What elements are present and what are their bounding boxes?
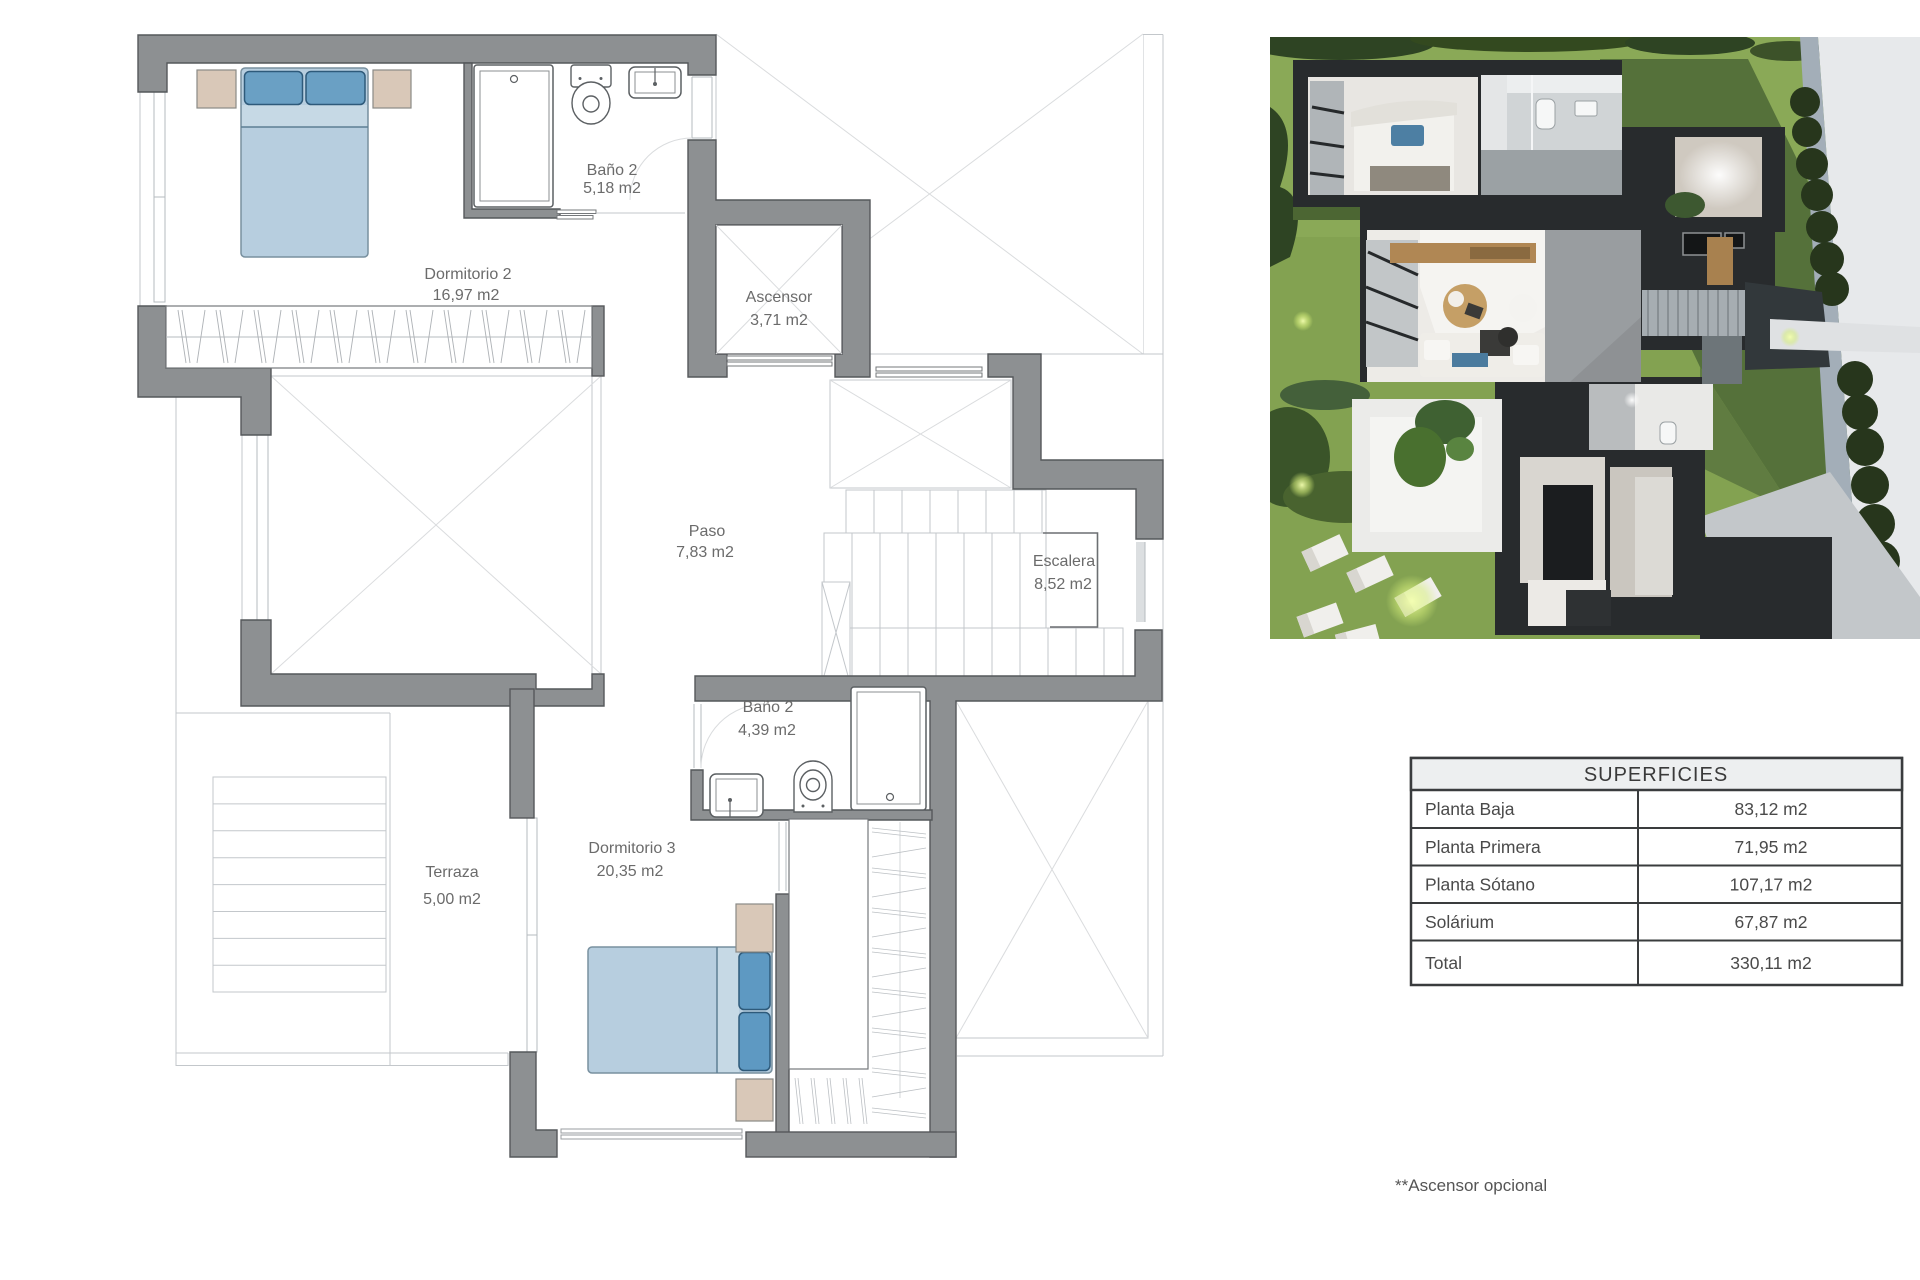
svg-text:330,11 m2: 330,11 m2 bbox=[1730, 953, 1811, 973]
svg-text:5,00 m2: 5,00 m2 bbox=[423, 891, 481, 908]
svg-text:4,39 m2: 4,39 m2 bbox=[738, 722, 796, 739]
svg-text:5,18 m2: 5,18 m2 bbox=[583, 180, 641, 197]
svg-text:20,35 m2: 20,35 m2 bbox=[597, 863, 664, 880]
svg-text:Total: Total bbox=[1425, 953, 1462, 973]
svg-text:83,12 m2: 83,12 m2 bbox=[1735, 799, 1808, 819]
svg-text:**Ascensor opcional: **Ascensor opcional bbox=[1395, 1176, 1547, 1195]
svg-text:16,97 m2: 16,97 m2 bbox=[433, 287, 500, 304]
svg-text:Ascensor: Ascensor bbox=[746, 289, 813, 306]
svg-text:Dormitorio 2: Dormitorio 2 bbox=[424, 266, 511, 283]
svg-text:Escalera: Escalera bbox=[1033, 553, 1095, 570]
svg-text:71,95 m2: 71,95 m2 bbox=[1735, 837, 1808, 857]
svg-text:Planta Primera: Planta Primera bbox=[1425, 837, 1541, 857]
svg-text:Baño 2: Baño 2 bbox=[743, 699, 794, 716]
svg-text:Solárium: Solárium bbox=[1425, 912, 1494, 932]
svg-text:7,83 m2: 7,83 m2 bbox=[676, 544, 734, 561]
svg-text:8,52 m2: 8,52 m2 bbox=[1034, 576, 1092, 593]
svg-text:SUPERFICIES: SUPERFICIES bbox=[1584, 764, 1728, 786]
svg-text:Terraza: Terraza bbox=[425, 864, 478, 881]
svg-text:Paso: Paso bbox=[689, 523, 726, 540]
svg-text:Planta Baja: Planta Baja bbox=[1425, 799, 1515, 819]
svg-text:107,17 m2: 107,17 m2 bbox=[1730, 874, 1813, 894]
svg-text:3,71 m2: 3,71 m2 bbox=[750, 312, 808, 329]
svg-text:Baño 2: Baño 2 bbox=[587, 162, 638, 179]
svg-text:67,87 m2: 67,87 m2 bbox=[1735, 912, 1808, 932]
svg-text:Dormitorio 3: Dormitorio 3 bbox=[588, 840, 675, 857]
svg-text:Planta Sótano: Planta Sótano bbox=[1425, 874, 1535, 894]
